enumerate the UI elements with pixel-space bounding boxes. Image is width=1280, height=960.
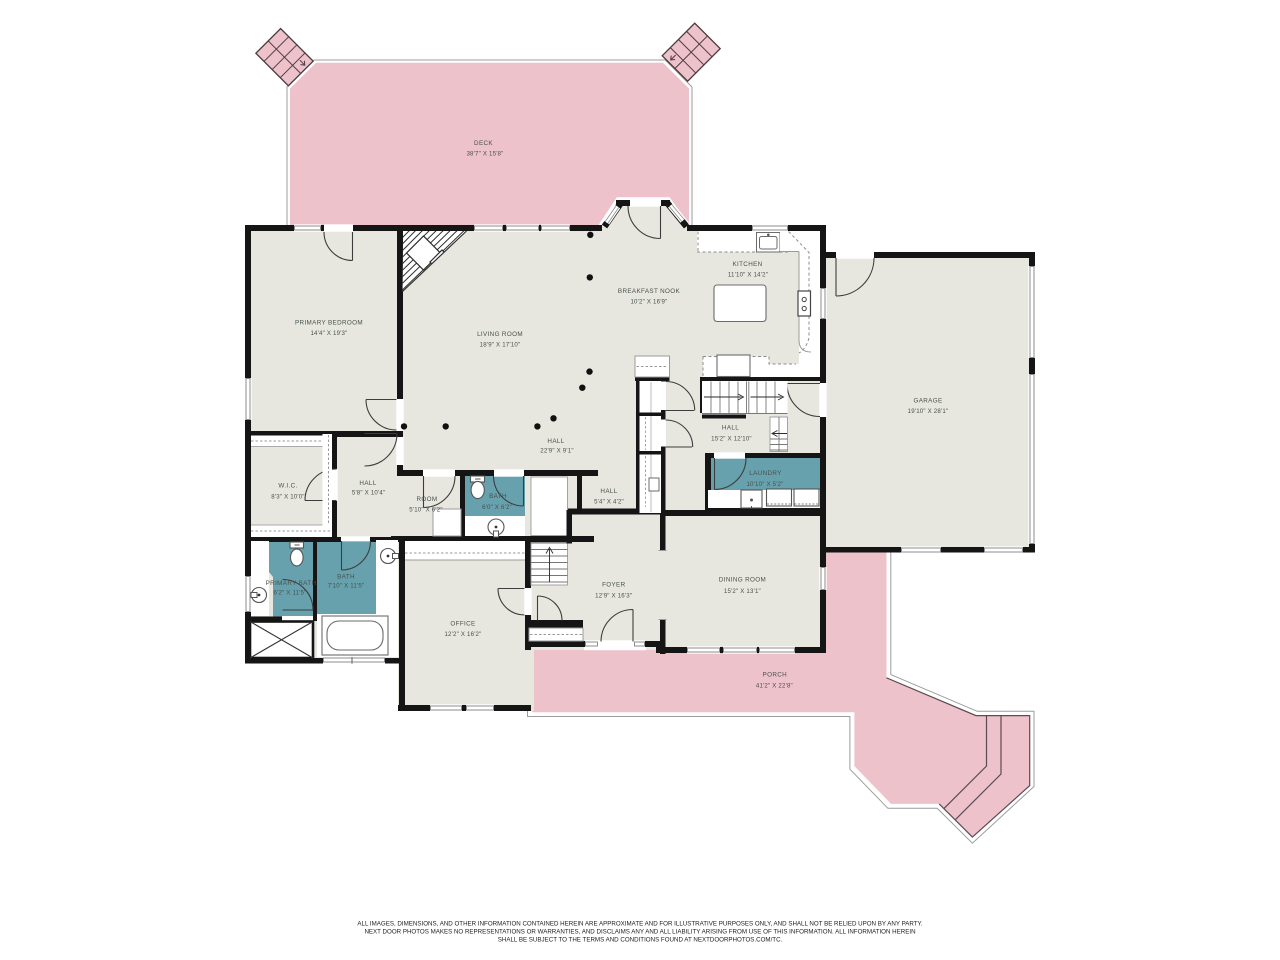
svg-text:HALL: HALL — [600, 488, 617, 495]
svg-text:7'10" X 11'5": 7'10" X 11'5" — [328, 582, 365, 589]
svg-text:ALL IMAGES, DIMENSIONS, AND OT: ALL IMAGES, DIMENSIONS, AND OTHER INFORM… — [357, 920, 922, 927]
svg-text:19'10" X 28'1": 19'10" X 28'1" — [908, 408, 949, 415]
svg-text:DINING ROOM: DINING ROOM — [719, 577, 766, 584]
svg-text:HALL: HALL — [722, 425, 739, 432]
svg-text:HALL: HALL — [547, 438, 564, 445]
svg-text:HALL: HALL — [359, 480, 376, 487]
svg-text:10'2" X 16'9": 10'2" X 16'9" — [630, 298, 667, 305]
svg-text:NEXT DOOR PHOTOS MAKES NO REPR: NEXT DOOR PHOTOS MAKES NO REPRESENTATION… — [364, 928, 915, 935]
svg-text:14'4" X 19'3": 14'4" X 19'3" — [310, 330, 347, 337]
svg-text:PRIMARY BATH: PRIMARY BATH — [266, 580, 317, 587]
svg-text:GARAGE: GARAGE — [913, 397, 942, 404]
svg-text:FOYER: FOYER — [602, 581, 626, 588]
svg-text:BATH: BATH — [489, 493, 507, 500]
svg-text:15'2" X 12'10": 15'2" X 12'10" — [711, 436, 752, 443]
svg-text:5'10" X 6'2": 5'10" X 6'2" — [409, 507, 442, 514]
svg-text:PORCH: PORCH — [763, 671, 788, 678]
svg-text:PRIMARY BEDROOM: PRIMARY BEDROOM — [295, 320, 363, 327]
svg-text:W.I.C.: W.I.C. — [278, 483, 297, 490]
svg-text:10'10" X 5'2": 10'10" X 5'2" — [746, 481, 783, 488]
svg-text:12'9" X 16'3": 12'9" X 16'3" — [595, 593, 632, 600]
svg-text:LIVING ROOM: LIVING ROOM — [477, 331, 523, 338]
svg-text:KITCHEN: KITCHEN — [732, 261, 762, 268]
svg-text:8'3" X 10'0": 8'3" X 10'0" — [271, 494, 304, 501]
svg-text:38'7" X 15'8": 38'7" X 15'8" — [466, 151, 503, 158]
svg-text:11'10" X 14'2": 11'10" X 14'2" — [728, 272, 768, 279]
svg-text:5'4" X 4'2": 5'4" X 4'2" — [594, 498, 624, 505]
svg-text:18'9" X 17'10": 18'9" X 17'10" — [480, 341, 521, 348]
svg-text:BREAKFAST NOOK: BREAKFAST NOOK — [618, 288, 681, 295]
svg-text:5'8" X 10'4": 5'8" X 10'4" — [352, 490, 385, 497]
svg-text:12'2" X 16'2": 12'2" X 16'2" — [444, 631, 481, 638]
svg-text:ROOM: ROOM — [417, 496, 438, 503]
svg-text:SHALL BE SUBJECT TO THE TERMS: SHALL BE SUBJECT TO THE TERMS AND CONDIT… — [498, 936, 783, 943]
svg-text:22'9" X 9'1": 22'9" X 9'1" — [540, 448, 573, 455]
svg-text:41'2" X 22'8": 41'2" X 22'8" — [756, 683, 793, 690]
svg-text:6'2" X 11'5": 6'2" X 11'5" — [274, 590, 307, 597]
svg-text:DECK: DECK — [474, 140, 493, 147]
svg-text:OFFICE: OFFICE — [450, 621, 475, 628]
svg-text:LAUNDRY: LAUNDRY — [749, 470, 782, 477]
svg-text:BATH: BATH — [337, 573, 355, 580]
svg-text:15'2" X 13'1": 15'2" X 13'1" — [724, 588, 761, 595]
svg-text:6'0" X 6'2": 6'0" X 6'2" — [482, 504, 512, 511]
